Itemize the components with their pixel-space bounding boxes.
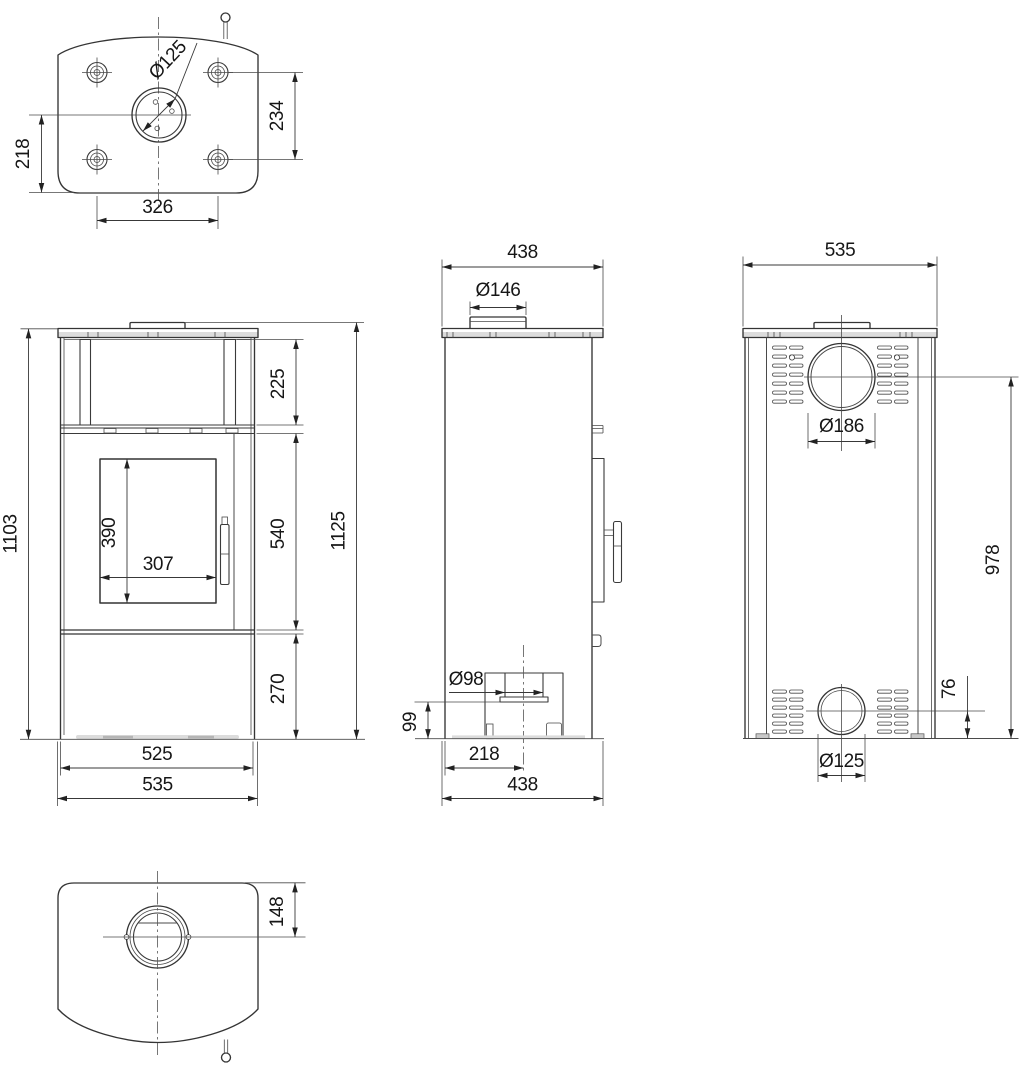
bottom-view: 148 <box>58 871 306 1062</box>
side-view: 438 Ø146 Ø98 99 218 438 <box>400 242 622 806</box>
vent-grille-top-left <box>773 346 804 403</box>
dim-side-inlet-bottom-height: 99 <box>400 712 421 732</box>
dim-top-bolt-row-spacing: 234 <box>267 100 288 131</box>
plinth <box>76 735 239 739</box>
dim-top-bolt-col-spacing: 326 <box>142 197 173 218</box>
top-view: Ø125 218 234 326 <box>13 13 303 229</box>
dim-top-rear-offset: 218 <box>13 139 34 170</box>
dim-back-flue-diameter: Ø186 <box>819 416 864 437</box>
dim-bottom-inlet-center-offset: 148 <box>267 897 288 928</box>
dim-front-body-height: 1103 <box>1 514 22 553</box>
niche-shelf <box>61 425 255 434</box>
dim-side-depth-top: 438 <box>507 242 538 263</box>
back-view: Ø186 Ø125 535 978 76 <box>743 240 1019 782</box>
plate-boss <box>130 323 185 329</box>
dim-front-door-section: 540 <box>268 519 289 550</box>
top-plate-band <box>442 332 603 338</box>
door-handle-side <box>604 522 622 583</box>
dim-side-inlet-center-offset: 218 <box>469 744 500 765</box>
dim-front-base-height: 270 <box>268 674 289 705</box>
vent-grille-bottom-right <box>878 690 909 733</box>
dim-back-inlet-center-height: 76 <box>939 679 960 699</box>
body-trim <box>749 338 932 739</box>
niche-post-left <box>80 340 91 426</box>
plate-boss <box>814 323 870 329</box>
dim-front-total-height: 1125 <box>329 511 350 550</box>
screw <box>894 355 899 360</box>
dim-front-plinth-width: 525 <box>142 744 173 765</box>
flue-collar-side <box>470 317 526 329</box>
foot <box>756 734 769 739</box>
dim-back-total-width: 535 <box>825 240 856 261</box>
shelf-edge <box>592 426 603 434</box>
damper-knob-bottom <box>222 1040 231 1063</box>
body-sides <box>61 338 255 740</box>
front-view: 1103 1125 225 540 270 390 307 525 535 <box>1 323 366 807</box>
technical-drawing-page: Ø125 218 234 326 <box>0 0 1024 1077</box>
bolt-boss <box>82 58 112 88</box>
dim-back-inlet-diameter: Ø125 <box>819 751 864 772</box>
bolt-boss <box>82 145 112 175</box>
dim-front-glass-height: 390 <box>99 518 120 549</box>
door-handle <box>221 517 230 585</box>
dim-front-total-width: 535 <box>142 775 173 796</box>
foot <box>911 734 924 739</box>
dim-side-collar-diameter: Ø146 <box>476 280 521 301</box>
dim-front-glass-width: 307 <box>143 554 174 575</box>
air-inlet-box <box>485 673 563 739</box>
vent-grille-top-right <box>878 346 909 403</box>
plinth <box>452 735 585 738</box>
inlet-flange <box>500 697 548 702</box>
door-front-face <box>592 459 604 603</box>
latch-bracket <box>592 635 601 647</box>
niche-post-right <box>224 340 236 426</box>
dim-front-niche-height: 225 <box>268 369 289 400</box>
body-trim <box>64 338 251 736</box>
dim-side-inlet-diameter: Ø98 <box>449 669 484 690</box>
damper-knob-top <box>221 13 230 39</box>
top-plate-band <box>743 332 937 338</box>
shelf-tabs <box>104 429 238 434</box>
screw <box>789 355 794 360</box>
vent-grille-bottom-left <box>773 690 804 733</box>
base-seam <box>61 630 255 634</box>
stove-dimension-drawing: Ø125 218 234 326 <box>0 0 1024 1077</box>
bottom-view-outline <box>58 883 258 1043</box>
ext-line <box>228 73 303 160</box>
panel-seams <box>767 338 919 739</box>
body-sides <box>745 338 935 739</box>
dim-back-flue-center-height: 978 <box>983 545 1004 576</box>
inlet-pipe <box>505 673 543 697</box>
dim-side-depth-bottom: 438 <box>507 775 538 796</box>
